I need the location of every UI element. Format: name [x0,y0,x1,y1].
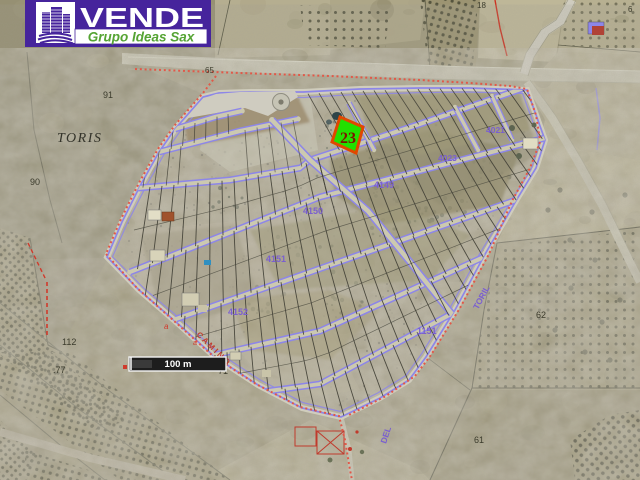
svg-text:4021: 4021 [486,125,505,135]
svg-text:a: a [193,340,197,347]
svg-text:100 m: 100 m [165,359,192,370]
svg-text:18: 18 [477,1,486,10]
svg-text:91: 91 [103,90,113,100]
svg-text:a: a [164,322,169,331]
svg-text:TORIS: TORIS [57,131,102,146]
svg-text:112: 112 [62,337,76,347]
svg-text:90: 90 [30,177,40,187]
svg-text:4150: 4150 [303,206,323,216]
svg-text:62: 62 [536,310,546,320]
svg-text:1151: 1151 [417,326,437,336]
svg-text:VENDE: VENDE [80,2,204,33]
svg-text:23: 23 [340,130,356,147]
svg-text:6: 6 [628,5,633,14]
svg-text:4152: 4152 [228,307,248,317]
svg-text:61: 61 [474,435,484,445]
svg-text:.77: .77 [53,365,66,375]
svg-text:65: 65 [205,66,214,75]
svg-text:4023: 4023 [438,153,457,163]
svg-text:Grupo Ideas Sax: Grupo Ideas Sax [88,30,195,45]
svg-text:4151: 4151 [266,254,286,264]
svg-text:4149: 4149 [374,180,394,190]
